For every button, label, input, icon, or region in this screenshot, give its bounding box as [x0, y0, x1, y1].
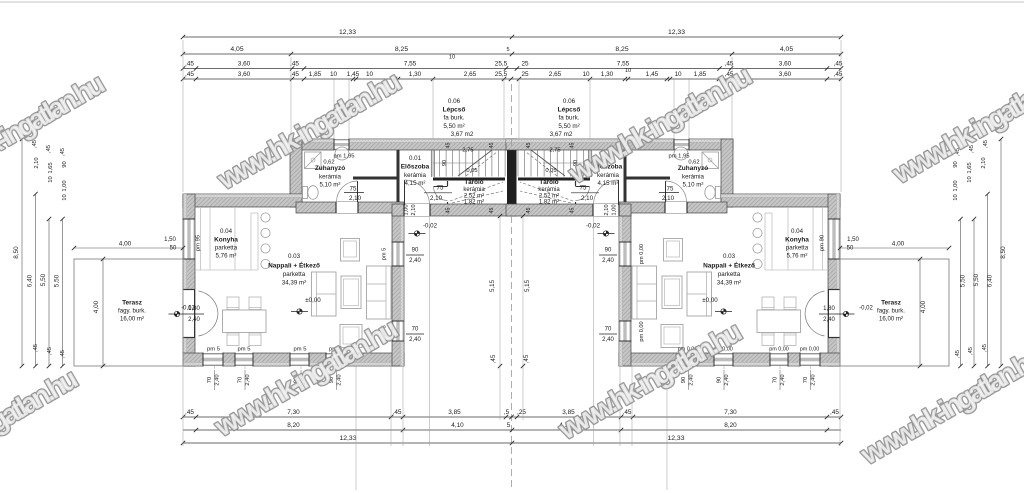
svg-text:2,40: 2,40	[724, 374, 730, 385]
svg-text:16,00 m²: 16,00 m²	[120, 316, 144, 323]
svg-text:±0,00: ±0,00	[702, 297, 718, 304]
svg-text:50: 50	[847, 246, 854, 252]
svg-text:7,55: 7,55	[404, 61, 417, 68]
svg-text:3,67 m2: 3,67 m2	[550, 131, 573, 138]
svg-text:25: 25	[521, 61, 529, 68]
svg-text:0,05: 0,05	[466, 168, 477, 174]
svg-text:90: 90	[953, 161, 959, 167]
svg-text:34,39 m²: 34,39 m²	[282, 280, 306, 287]
svg-text:4,15 m²: 4,15 m²	[405, 180, 426, 187]
svg-text:5,76 m²: 5,76 m²	[787, 253, 808, 260]
svg-text:Tároló: Tároló	[539, 179, 558, 186]
svg-text:4,15 m²: 4,15 m²	[598, 180, 619, 187]
svg-text:8,25: 8,25	[395, 46, 408, 53]
svg-text:25: 25	[521, 71, 529, 78]
svg-text:1,82 m²: 1,82 m²	[539, 200, 559, 206]
svg-text:pm 5: pm 5	[238, 347, 251, 353]
svg-text:12,33: 12,33	[339, 435, 356, 442]
svg-text:pm 1,95: pm 1,95	[334, 154, 355, 160]
svg-text:0.06: 0.06	[448, 98, 461, 105]
svg-text:pm 5: pm 5	[207, 347, 220, 353]
svg-text:4,10: 4,10	[451, 422, 464, 429]
svg-text:10: 10	[953, 194, 959, 200]
svg-text:75: 75	[437, 185, 444, 192]
svg-text:2,75: 2,75	[462, 148, 473, 154]
svg-text:fagy. burk.: fagy. burk.	[877, 308, 905, 315]
svg-text:4,00: 4,00	[119, 241, 132, 248]
svg-text:2,65: 2,65	[549, 71, 562, 78]
svg-text:kerámia: kerámia	[538, 187, 560, 193]
svg-text:90: 90	[62, 161, 68, 167]
svg-text:Konyha: Konyha	[214, 237, 238, 244]
svg-text:25,5: 25,5	[495, 61, 508, 68]
svg-text:3,85: 3,85	[448, 409, 461, 416]
svg-text:34,39 m²: 34,39 m²	[717, 280, 741, 287]
svg-text:,45: ,45	[47, 347, 53, 355]
svg-text:,45: ,45	[830, 409, 839, 416]
svg-text:5,15: 5,15	[489, 279, 496, 292]
svg-text:0.04: 0.04	[791, 228, 804, 235]
svg-text:fa burk.: fa burk.	[559, 115, 580, 122]
svg-text:2,40: 2,40	[811, 374, 817, 385]
svg-text:70: 70	[803, 377, 809, 383]
svg-text:Előszoba: Előszoba	[401, 164, 430, 171]
svg-text:1,85: 1,85	[309, 71, 322, 78]
svg-text:,45: ,45	[834, 61, 843, 68]
svg-text:12,33: 12,33	[667, 435, 684, 442]
svg-text:3,60: 3,60	[779, 71, 792, 78]
svg-text:8,50: 8,50	[1000, 246, 1007, 259]
svg-text:2,40: 2,40	[602, 337, 614, 343]
svg-text:1,00: 1,00	[612, 204, 618, 215]
svg-text:10: 10	[625, 68, 631, 74]
svg-text:90: 90	[442, 160, 448, 166]
svg-text:pm 95: pm 95	[196, 235, 202, 251]
svg-text:45: 45	[570, 208, 576, 214]
svg-text:Nappali + Étkező: Nappali + Étkező	[268, 261, 320, 270]
svg-text:parketta: parketta	[283, 271, 306, 278]
svg-text:1,50: 1,50	[164, 237, 176, 243]
svg-text:75: 75	[667, 186, 674, 193]
svg-text:,45: ,45	[290, 61, 299, 68]
svg-text:8,20: 8,20	[724, 422, 737, 429]
svg-text:0,62: 0,62	[323, 160, 334, 166]
svg-text:Lépcső: Lépcső	[558, 107, 581, 114]
svg-text:4,05: 4,05	[780, 46, 793, 53]
svg-text:5,50: 5,50	[40, 273, 47, 286]
svg-text:4,00: 4,00	[892, 241, 905, 248]
svg-text:,45: ,45	[490, 354, 497, 363]
svg-text:0.03: 0.03	[288, 253, 301, 260]
svg-text:45: 45	[446, 143, 452, 149]
svg-text:45: 45	[526, 208, 532, 214]
svg-text:,5: ,5	[504, 409, 510, 416]
svg-text:10: 10	[674, 71, 682, 78]
svg-text:7,30: 7,30	[724, 409, 737, 416]
svg-text:1,50: 1,50	[847, 237, 859, 243]
svg-text:5,50: 5,50	[973, 273, 980, 286]
svg-text:2,65: 2,65	[464, 71, 477, 78]
svg-text:pm 1,95: pm 1,95	[669, 154, 690, 160]
svg-text:Terasz: Terasz	[122, 300, 142, 307]
svg-text:10: 10	[967, 176, 973, 182]
svg-text:-0,02: -0,02	[181, 306, 195, 312]
svg-text:-0,02: -0,02	[586, 223, 601, 230]
svg-text:0,05: 0,05	[545, 168, 556, 174]
svg-text:4,00: 4,00	[920, 300, 927, 313]
svg-text:1,00: 1,00	[404, 204, 410, 215]
svg-text:5,50 m²: 5,50 m²	[443, 123, 464, 130]
svg-text:5,76 m²: 5,76 m²	[216, 253, 237, 260]
svg-text:Nappali + Étkező: Nappali + Étkező	[703, 261, 755, 270]
svg-text:,45: ,45	[393, 409, 402, 416]
svg-text:kerámia: kerámia	[404, 172, 427, 179]
svg-text:5: 5	[506, 47, 509, 53]
svg-text:10: 10	[330, 71, 338, 78]
svg-text:0.03: 0.03	[723, 253, 736, 260]
svg-text:2,40: 2,40	[409, 258, 421, 264]
svg-text:,25: ,25	[517, 409, 526, 416]
svg-text:1,45: 1,45	[646, 71, 659, 78]
svg-text:Lépcső: Lépcső	[443, 107, 466, 114]
svg-text:,45: ,45	[32, 140, 38, 148]
svg-text:4,00: 4,00	[93, 300, 100, 313]
svg-text:,45: ,45	[60, 350, 66, 358]
svg-text:45: 45	[570, 143, 576, 149]
svg-text:2,40: 2,40	[409, 337, 421, 343]
svg-text:pm 90: pm 90	[820, 235, 826, 251]
svg-text:6,40: 6,40	[987, 274, 994, 287]
svg-text:kerámia: kerámia	[682, 174, 705, 181]
svg-text:10: 10	[62, 194, 68, 200]
svg-text:,45: ,45	[834, 71, 843, 78]
svg-text:Konyha: Konyha	[785, 237, 809, 244]
svg-text:3,60: 3,60	[238, 71, 251, 78]
svg-text:5,10 m²: 5,10 m²	[683, 182, 704, 189]
svg-text:Zuhanyzó: Zuhanyzó	[315, 165, 345, 172]
svg-text:2,40: 2,40	[602, 258, 614, 264]
svg-text:2,40: 2,40	[689, 374, 695, 385]
svg-text:pm 5: pm 5	[294, 347, 307, 353]
svg-text:90: 90	[412, 248, 419, 254]
svg-text:8,50: 8,50	[13, 246, 20, 259]
svg-text:1,85: 1,85	[694, 71, 707, 78]
svg-text:2,10: 2,10	[662, 195, 675, 202]
svg-text:7,30: 7,30	[287, 409, 300, 416]
svg-text:2,40: 2,40	[823, 317, 835, 323]
svg-text:45: 45	[489, 143, 495, 149]
svg-text:45: 45	[489, 208, 495, 214]
svg-text:10: 10	[48, 176, 54, 182]
svg-text:1,65: 1,65	[48, 162, 54, 173]
svg-text:5,15: 5,15	[524, 279, 531, 292]
svg-text:1,30: 1,30	[409, 71, 422, 78]
svg-text:90: 90	[717, 377, 723, 383]
svg-text:6,40: 6,40	[27, 274, 34, 287]
svg-text:,45: ,45	[523, 354, 530, 363]
svg-text:2,10: 2,10	[430, 195, 443, 202]
svg-text:Tároló: Tároló	[464, 179, 483, 186]
svg-text:5,10 m²: 5,10 m²	[320, 182, 341, 189]
svg-text:45: 45	[446, 208, 452, 214]
svg-text:pm 5: pm 5	[382, 248, 388, 260]
svg-text:70: 70	[412, 327, 419, 333]
svg-text:1,30: 1,30	[601, 71, 614, 78]
svg-text:70: 70	[238, 377, 244, 383]
svg-text:0.04: 0.04	[220, 228, 233, 235]
svg-text:,45: ,45	[185, 409, 194, 416]
svg-text:pm 0,00: pm 0,00	[769, 347, 788, 353]
svg-text:10: 10	[582, 71, 590, 78]
svg-text:50: 50	[170, 246, 177, 252]
svg-text:2,40: 2,40	[215, 374, 221, 385]
svg-text:2,40: 2,40	[245, 374, 251, 385]
svg-text:2,40: 2,40	[780, 374, 786, 385]
svg-text:-0,02: -0,02	[423, 223, 438, 230]
svg-text:0,62: 0,62	[688, 160, 699, 166]
svg-text:Terasz: Terasz	[881, 300, 901, 307]
svg-text:2,10: 2,10	[349, 195, 362, 202]
svg-text:parketta: parketta	[718, 271, 741, 278]
svg-text:kerámia: kerámia	[319, 174, 342, 181]
svg-text:2,10: 2,10	[604, 204, 610, 215]
svg-text:,45: ,45	[33, 344, 39, 352]
svg-text:Zuhanyzó: Zuhanyzó	[678, 165, 708, 172]
svg-text:10: 10	[449, 55, 455, 61]
svg-text:5,50: 5,50	[54, 274, 61, 287]
svg-text:45: 45	[526, 143, 532, 149]
svg-text:2,40: 2,40	[188, 317, 200, 323]
svg-text:,45: ,45	[185, 71, 194, 78]
svg-text:75: 75	[350, 186, 357, 193]
svg-text:2,10: 2,10	[411, 204, 417, 215]
svg-text:,45: ,45	[982, 344, 988, 352]
svg-text:1,65: 1,65	[967, 162, 973, 173]
svg-text:parketta: parketta	[786, 245, 809, 252]
svg-text:fa burk.: fa burk.	[444, 115, 465, 122]
svg-text:0.06: 0.06	[563, 98, 576, 105]
svg-text:,45: ,45	[968, 347, 974, 355]
svg-text:70: 70	[773, 377, 779, 383]
svg-text:±0,00: ±0,00	[305, 297, 321, 304]
svg-text:90: 90	[605, 248, 612, 254]
svg-text:12,33: 12,33	[339, 29, 356, 36]
svg-text:1,82 m²: 1,82 m²	[464, 200, 484, 206]
svg-text:8,20: 8,20	[287, 422, 300, 429]
svg-text:70: 70	[605, 327, 612, 333]
svg-text:,45: ,45	[46, 145, 52, 153]
svg-text:fagy. burk.: fagy. burk.	[118, 308, 146, 315]
svg-text:,45: ,45	[60, 148, 66, 156]
svg-text:1,00: 1,00	[953, 180, 959, 191]
svg-text:2,10: 2,10	[34, 157, 40, 168]
svg-text:3,60: 3,60	[779, 61, 792, 68]
svg-text:12,33: 12,33	[668, 29, 685, 36]
svg-text:8,25: 8,25	[615, 46, 628, 53]
svg-text:25,5: 25,5	[495, 71, 508, 78]
svg-text:7,55: 7,55	[617, 61, 630, 68]
svg-text:4,05: 4,05	[230, 46, 243, 53]
svg-text:pm 0,00: pm 0,00	[800, 347, 819, 353]
svg-text:pm 0,00: pm 0,00	[639, 244, 645, 264]
svg-text:2,10: 2,10	[581, 195, 594, 202]
svg-text:-0,02: -0,02	[859, 306, 873, 312]
svg-text:1,00: 1,00	[62, 180, 68, 191]
svg-text:2,75: 2,75	[549, 148, 560, 154]
svg-text:5,50 m²: 5,50 m²	[558, 123, 579, 130]
svg-text:2,10: 2,10	[981, 157, 987, 168]
svg-text:,45: ,45	[955, 350, 961, 358]
svg-text:5,50: 5,50	[960, 274, 967, 287]
svg-text:16,00 m²: 16,00 m²	[879, 316, 903, 323]
svg-text:kerámia: kerámia	[463, 187, 485, 193]
svg-text:parketta: parketta	[215, 245, 238, 252]
svg-text:1,80: 1,80	[823, 306, 835, 312]
svg-text:3,67 m2: 3,67 m2	[451, 131, 474, 138]
svg-text:1,45: 1,45	[347, 71, 360, 78]
svg-text:0.01: 0.01	[409, 155, 422, 162]
svg-text:,45: ,45	[185, 61, 194, 68]
svg-text:pm 0,00: pm 0,00	[639, 321, 645, 341]
svg-text:5: 5	[507, 422, 511, 429]
svg-text:3,60: 3,60	[238, 61, 251, 68]
svg-text:70: 70	[207, 377, 213, 383]
svg-text:,45: ,45	[290, 71, 299, 78]
